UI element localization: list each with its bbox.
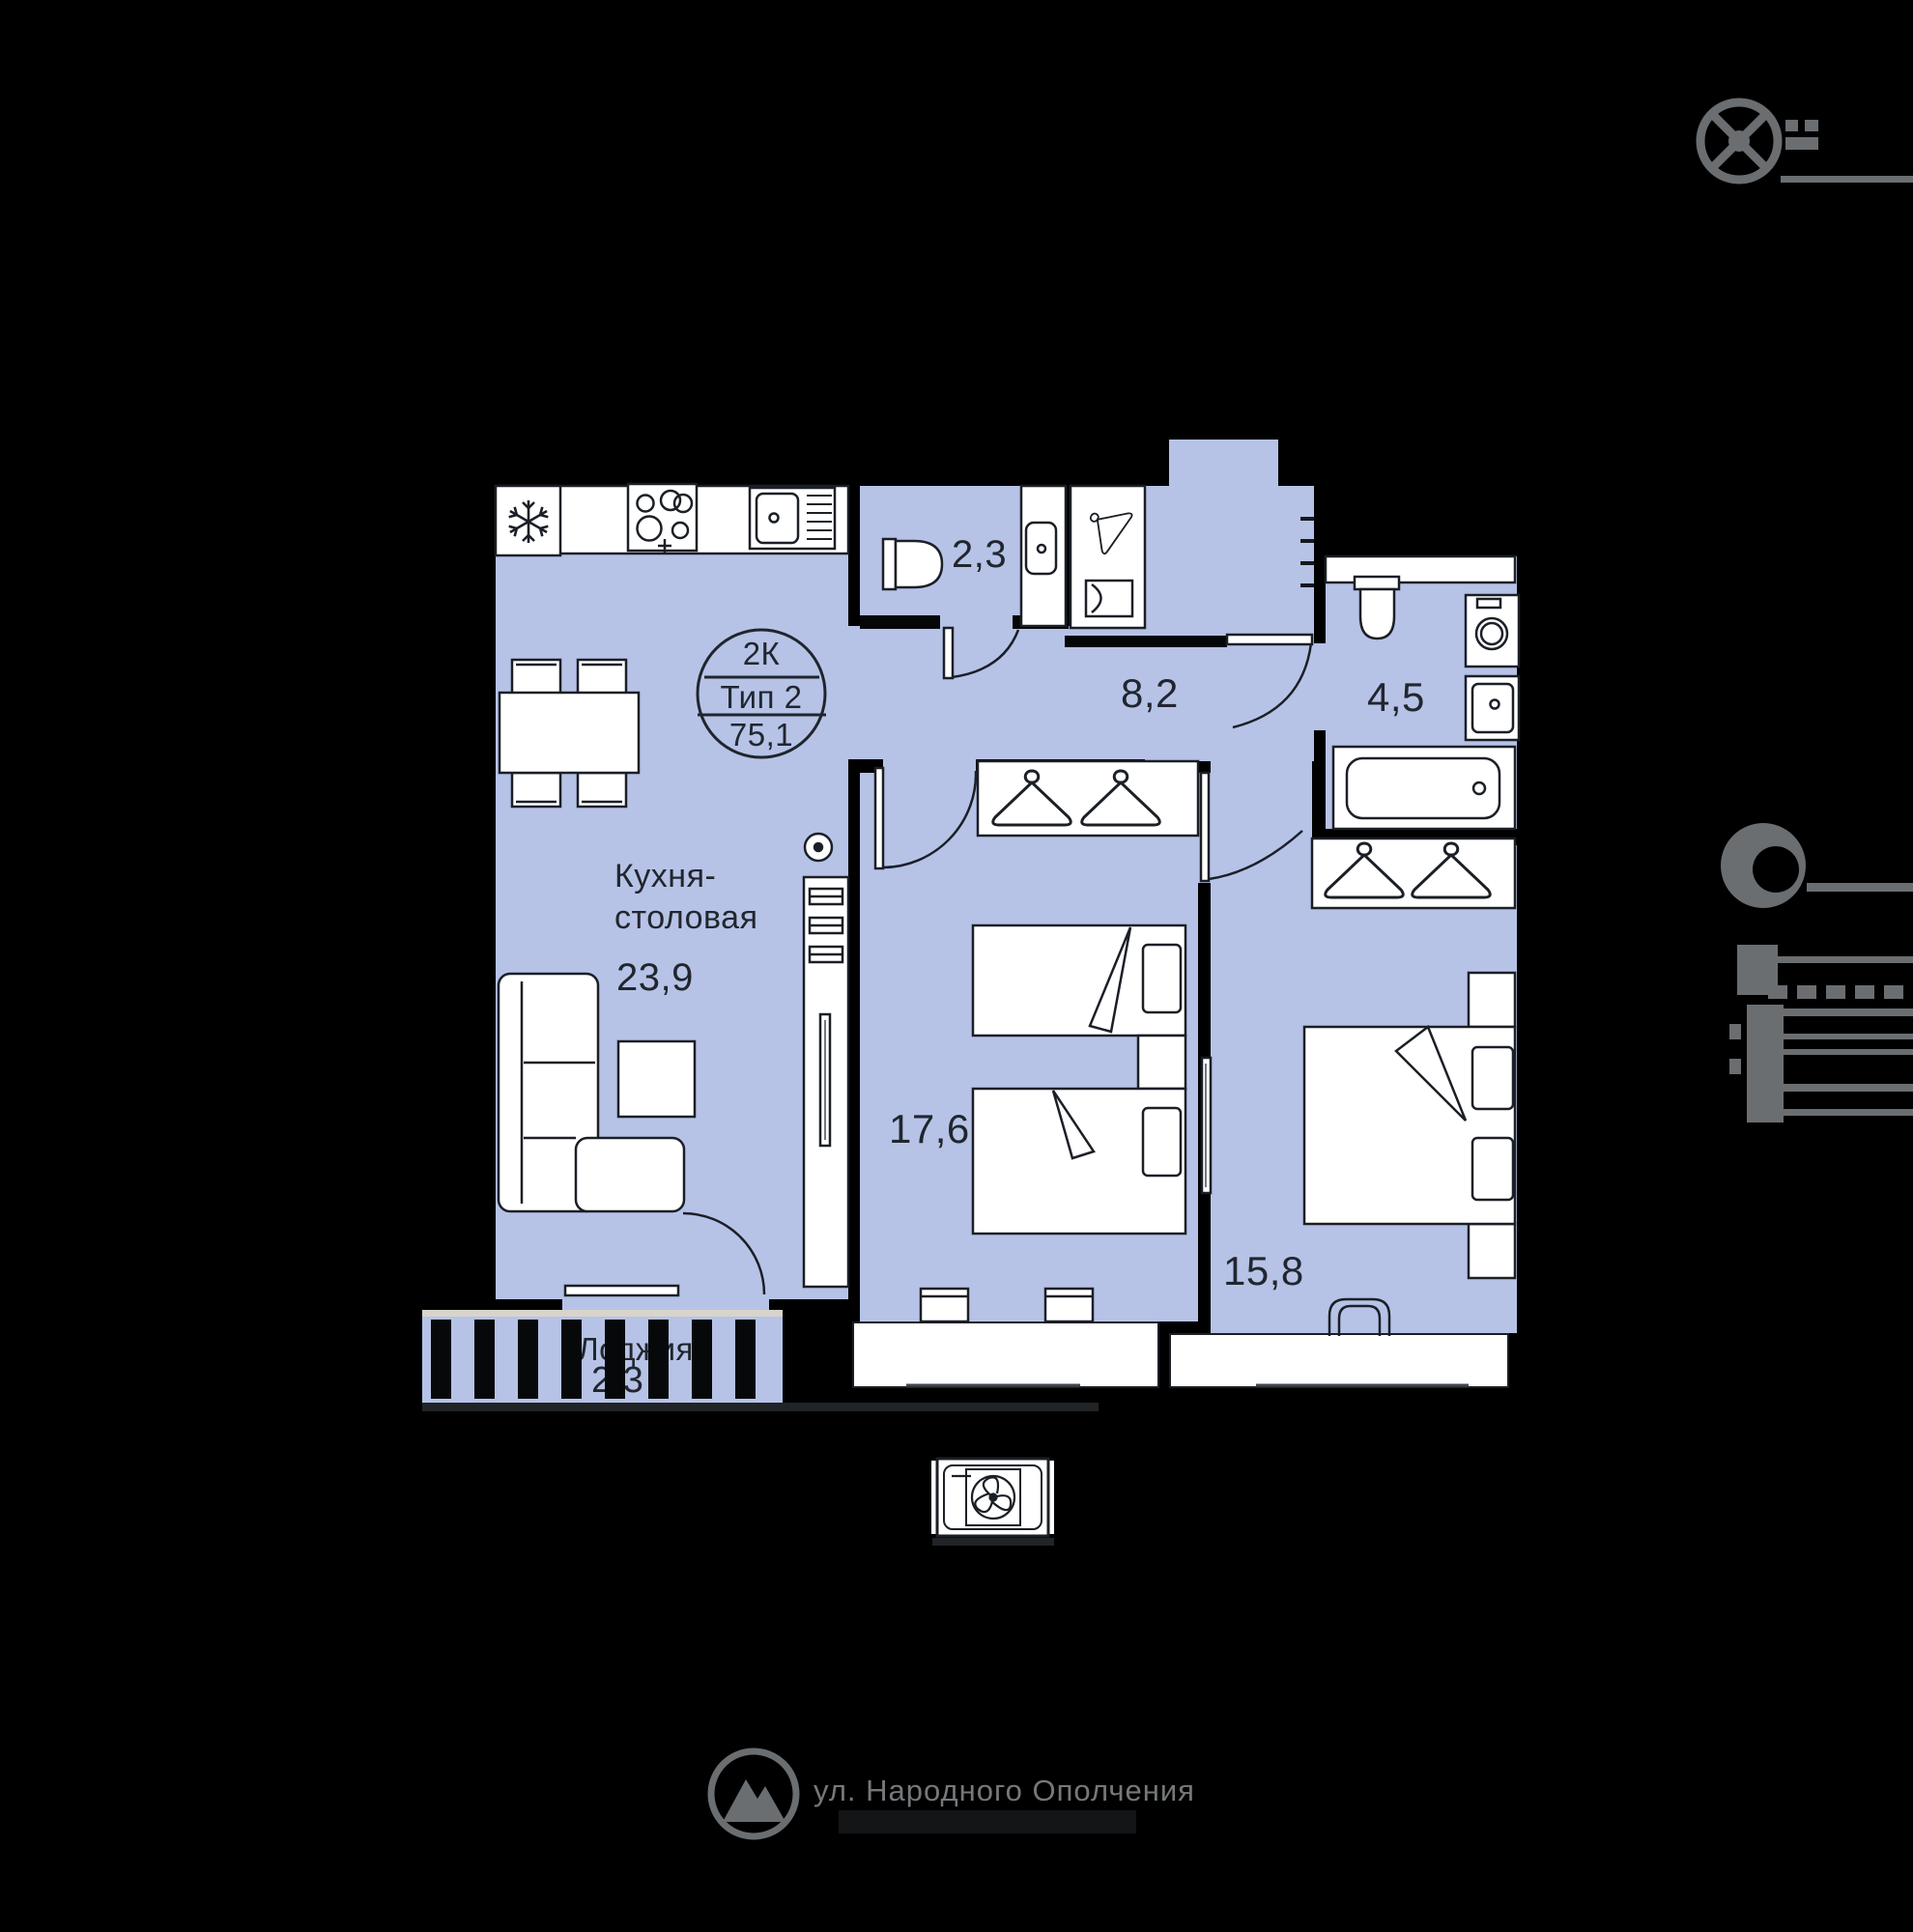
ac-shadow [932, 1538, 1054, 1546]
bedroom-master-area-label: 15,8 [1223, 1248, 1304, 1294]
window-band-master [1169, 1333, 1509, 1388]
wall-wc-right [1013, 615, 1069, 629]
header-rule [1781, 176, 1913, 183]
vestibule-floor [1169, 440, 1278, 488]
stamp-total-area: 75,1 [694, 717, 829, 753]
hallway-area-label: 8,2 [1121, 670, 1179, 717]
loggia-shadow [422, 1403, 1099, 1411]
wall-hall-mid [1065, 636, 1227, 647]
hanger-icon [1077, 496, 1132, 554]
fan-vent-icon [952, 1476, 1014, 1519]
doorway-bedroom-master [1198, 773, 1212, 883]
floorplan-page: Кухня-столовая 23,9 2,3 8,2 4,5 17,6 15,… [0, 0, 1913, 1932]
footer-address: ул. Народного Ополчения [814, 1774, 1195, 1808]
footer-subline [839, 1810, 1136, 1833]
kitchen-area-label: 23,9 [616, 956, 694, 1000]
compass-icon [1700, 102, 1818, 180]
ac-unit [931, 1459, 1054, 1536]
tv-icon [1202, 1058, 1211, 1193]
shoe-cabinet-icon [1086, 581, 1132, 616]
doorway-bathroom [1312, 643, 1328, 730]
entry-closet [1071, 486, 1145, 628]
stamp-type: Тип 2 [694, 679, 829, 716]
stamp-rooms: 2К [694, 636, 829, 672]
logo-mountain-icon [711, 1751, 796, 1836]
bathroom-area-label: 4,5 [1367, 674, 1425, 721]
bedroom-twin-floor [860, 773, 1198, 1321]
window-band-twin [852, 1321, 1159, 1388]
loggia-railing [431, 1320, 777, 1399]
bedroom-twin-area-label: 17,6 [889, 1106, 970, 1152]
kitchen-room-label: Кухня-столовая [614, 856, 771, 938]
loggia-rail-top [422, 1310, 783, 1317]
floor-indicator [1729, 883, 1913, 1122]
wall-wc-left [860, 615, 940, 629]
doorway-bedroom-twin [883, 759, 976, 777]
wc-area-label: 2,3 [952, 533, 1007, 577]
clock-icon [1721, 823, 1806, 908]
